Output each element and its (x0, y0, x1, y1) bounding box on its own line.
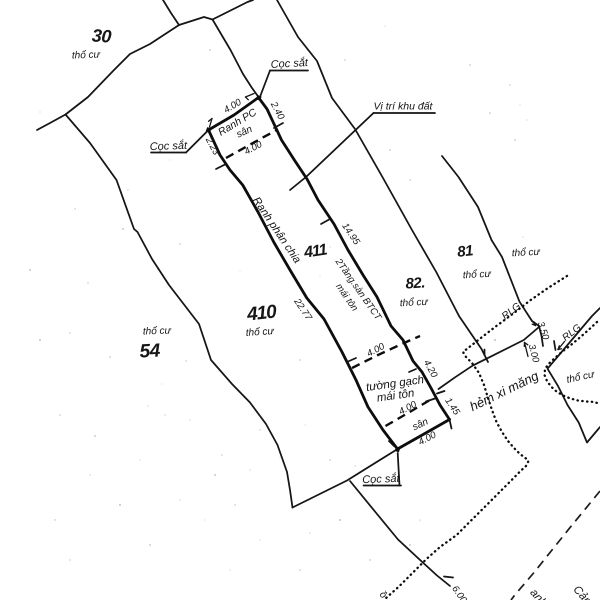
svg-text:thổ cư: thổ cư (143, 324, 172, 337)
svg-text:thổ cư: thổ cư (463, 268, 492, 281)
svg-text:Cọc sắt: Cọc sắt (362, 472, 401, 486)
svg-text:82.: 82. (405, 274, 425, 292)
svg-text:thổ cư: thổ cư (72, 48, 101, 61)
svg-text:thổ cư: thổ cư (512, 246, 541, 259)
svg-text:Cọc sắt: Cọc sắt (270, 56, 309, 71)
svg-text:thổ cư: thổ cư (245, 325, 274, 339)
svg-text:81: 81 (456, 242, 474, 261)
svg-text:54: 54 (139, 340, 161, 362)
svg-text:411: 411 (302, 241, 329, 261)
svg-text:410: 410 (245, 301, 278, 325)
svg-text:Cọc sắt: Cọc sắt (150, 139, 189, 153)
svg-text:30: 30 (91, 25, 112, 46)
svg-text:thổ cư: thổ cư (400, 296, 429, 309)
svg-text:Vị trí khu đất: Vị trí khu đất (374, 101, 434, 113)
